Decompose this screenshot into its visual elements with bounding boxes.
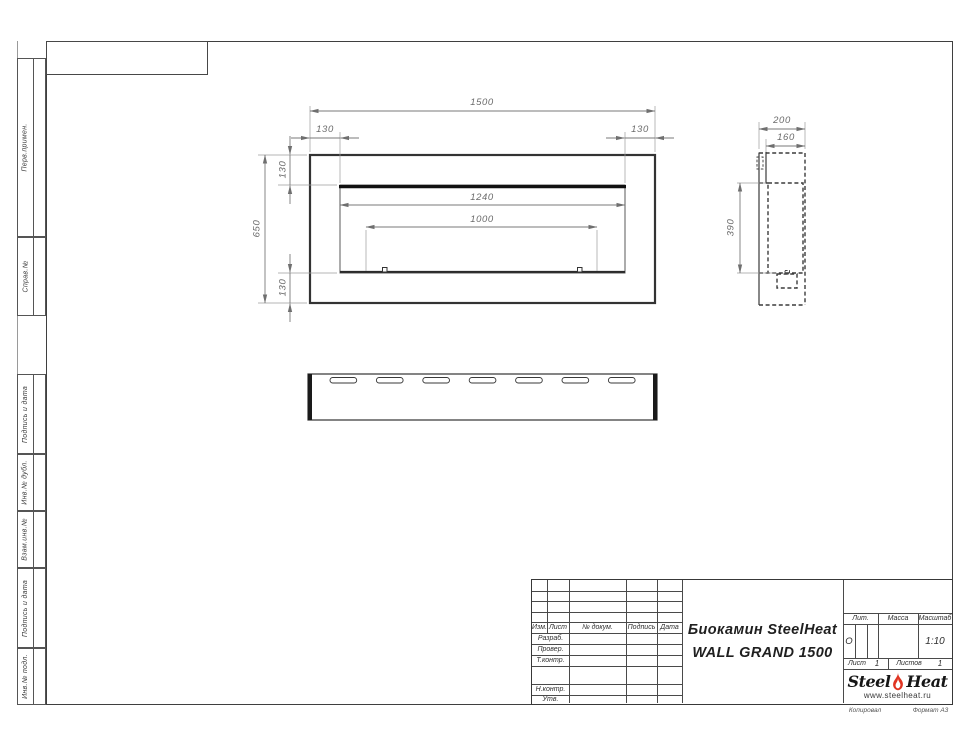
lit-header: Лит. [843, 613, 878, 624]
mass-header: Масса [878, 613, 918, 624]
flame-icon [891, 673, 905, 692]
scale-header: Масштаб [918, 613, 952, 624]
col-data: Дата [657, 622, 682, 633]
grid-line [532, 612, 682, 613]
dim-value-390: 390 [726, 198, 737, 258]
sheet-label: Лист [847, 658, 867, 669]
dim-value-160: 160 [756, 132, 816, 143]
margin-cell-perv-primen: Перв.примен. [17, 58, 46, 237]
margin-label: Инв.№ дубл. [22, 460, 29, 504]
margin-label: Справ.№ [22, 261, 29, 293]
grid-line [532, 591, 682, 592]
dim-value-200: 200 [752, 115, 812, 126]
margin-cell-podpis-data-2: Подпись и дата [17, 568, 46, 648]
dim-value-1500: 1500 [452, 97, 512, 108]
grid-line [532, 666, 682, 667]
title-block: Изм. Лист № докум. Подпись Дата Разраб. … [531, 579, 953, 705]
reuse-designation-box [46, 41, 208, 75]
col-list: Лист [547, 622, 569, 633]
dim-value-130-top-right: 130 [610, 124, 670, 135]
margin-cell-sprav-no: Справ.№ [17, 237, 46, 316]
drawing-sheet: .ext{stroke:#9b9b9b;stroke-width:.7;} .d… [0, 0, 970, 749]
dim-value-1000: 1000 [452, 214, 512, 225]
document-title-line1: Биокамин SteelHeat [688, 622, 837, 638]
col-izm: Изм. [532, 622, 547, 633]
margin-cell-inv-podl: Инв.№ подл. [17, 648, 46, 705]
margin-label: Перв.примен. [22, 123, 29, 171]
footer-format: Формат А3 [908, 707, 953, 714]
margin-cell-vzam-inv: Взам.инв.№ [17, 511, 46, 568]
sheets-value: 1 [932, 658, 948, 669]
dim-value-1240: 1240 [452, 192, 512, 203]
brand-heat: Heat [906, 672, 947, 691]
margin-cell-inv-dubl: Инв.№ дубл. [17, 454, 46, 511]
row-prover: Провер. [532, 644, 569, 655]
brand-url: www.steelheat.ru [864, 691, 931, 700]
grid-line [532, 601, 682, 602]
grid-line [867, 624, 868, 658]
lit-value: О [843, 624, 855, 658]
row-nkontr: Н.контр. [532, 684, 569, 695]
grid-line [855, 624, 856, 658]
document-title: Биокамин SteelHeat WALL GRAND 1500 [682, 580, 843, 703]
margin-label: Инв.№ подл. [22, 654, 29, 699]
dim-value-130-top-left: 130 [295, 124, 355, 135]
sheet-value: 1 [870, 658, 884, 669]
brand-steel: Steel [848, 672, 891, 691]
margin-label: Взам.инв.№ [22, 518, 29, 560]
scale-value: 1:10 [918, 624, 952, 658]
col-podpis: Подпись [626, 622, 657, 633]
margin-label: Подпись и дата [22, 579, 29, 636]
dim-value-650: 650 [252, 199, 263, 259]
footer-copied: Копировал [845, 707, 885, 714]
row-utv: Утв. [532, 695, 569, 703]
row-razrab: Разраб. [532, 633, 569, 644]
sheets-label: Листов [894, 658, 924, 669]
row-tkontr: Т.контр. [532, 655, 569, 666]
document-title-line2: WALL GRAND 1500 [692, 645, 832, 661]
margin-label: Подпись и дата [22, 385, 29, 442]
dim-value-130-lower: 130 [278, 258, 289, 318]
brand-logo: Steel Heat www.steelheat.ru [843, 669, 952, 702]
dim-value-130-upper: 130 [278, 140, 289, 200]
margin-cell-podpis-data-1: Подпись и дата [17, 374, 46, 454]
col-docnum: № докум. [569, 622, 626, 633]
grid-line [888, 658, 889, 669]
